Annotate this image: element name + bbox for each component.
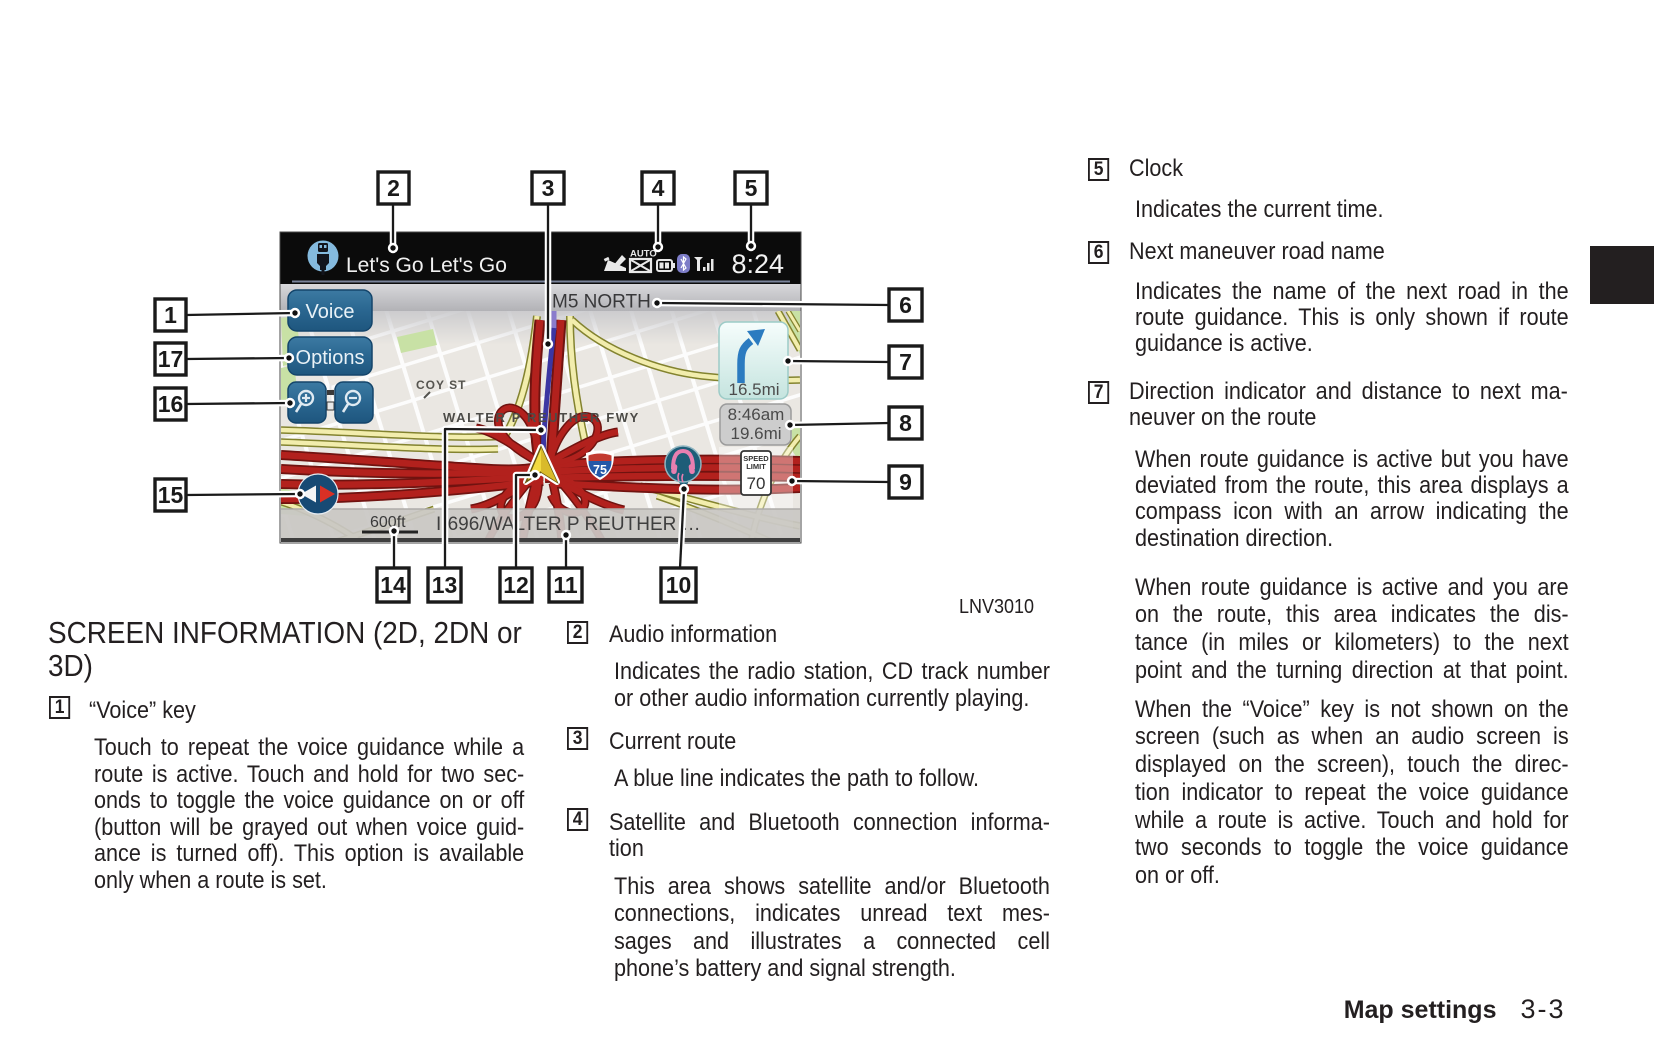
svg-text:WALTER P REUTHER FWY: WALTER P REUTHER FWY (443, 410, 640, 425)
svg-text:19.6mi: 19.6mi (730, 424, 781, 443)
svg-text:10: 10 (666, 572, 692, 598)
svg-text:AUTO: AUTO (630, 249, 657, 260)
svg-text:Options: Options (296, 347, 365, 369)
svg-text:COY ST: COY ST (416, 378, 466, 392)
svg-text:12: 12 (503, 572, 529, 598)
svg-text:3: 3 (542, 175, 555, 201)
svg-text:M5 NORTH: M5 NORTH (552, 292, 651, 313)
svg-text:9: 9 (899, 469, 912, 495)
svg-text:13: 13 (432, 572, 458, 598)
svg-text:8:24: 8:24 (731, 249, 784, 279)
svg-text:15: 15 (158, 482, 184, 508)
svg-text:Voice: Voice (306, 301, 355, 323)
svg-text:75: 75 (593, 463, 607, 477)
svg-text:16: 16 (158, 391, 184, 417)
svg-text:LIMIT: LIMIT (746, 462, 766, 471)
svg-text:600ft: 600ft (370, 514, 406, 531)
svg-text:6: 6 (899, 292, 912, 318)
svg-text:5: 5 (745, 175, 758, 201)
svg-text:16.5mi: 16.5mi (728, 380, 779, 399)
svg-text:7: 7 (899, 349, 912, 375)
svg-text:8:46am: 8:46am (728, 405, 785, 424)
svg-text:2: 2 (387, 175, 400, 201)
svg-text:8: 8 (899, 410, 912, 436)
svg-text:14: 14 (380, 572, 406, 598)
svg-text:Let's Go Let's Go: Let's Go Let's Go (346, 254, 507, 277)
svg-text:17: 17 (158, 346, 184, 372)
svg-text:1: 1 (164, 302, 177, 328)
svg-text:70: 70 (747, 474, 766, 493)
svg-text:11: 11 (553, 572, 578, 598)
svg-text:4: 4 (652, 175, 665, 201)
